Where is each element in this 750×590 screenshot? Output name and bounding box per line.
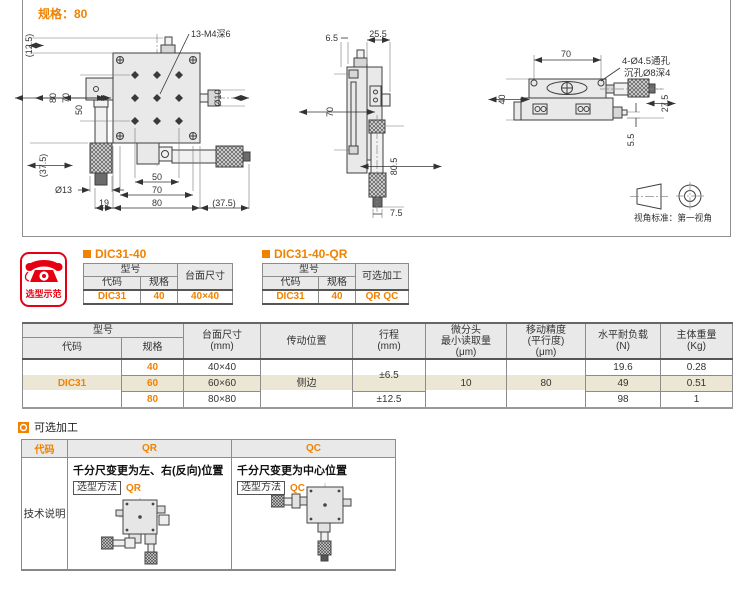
dim-label: Ø13 <box>55 185 72 195</box>
col-header-drive: 传动位置 <box>261 323 353 359</box>
cell-spec: 40 <box>141 290 178 304</box>
example-table-2: 型号 可选加工 代码 规格 DIC31 40 QR QC <box>262 263 409 305</box>
cell-travel: ±12.5 <box>353 392 426 409</box>
dim-label: 19 <box>99 198 109 208</box>
qr-option-cell: 千分尺变更为左、右(反向)位置 选型方法 QR <box>68 458 232 570</box>
table-row: 80 80×80 ±12.5 98 1 <box>23 392 733 409</box>
cell-travel: ±6.5 <box>353 359 426 392</box>
projection-symbol <box>630 182 704 210</box>
col-header-travel: 行程 (mm) <box>353 323 426 359</box>
cell-drive: 侧边 <box>261 359 353 408</box>
cell-weight: 0.28 <box>661 359 733 376</box>
optional-section-title: 可选加工 <box>18 419 78 435</box>
example-title-text: DIC31-40 <box>95 247 146 261</box>
hole-note-line2: 沉孔Ø8深4 <box>624 68 670 79</box>
col-header: 代码 <box>84 277 141 291</box>
col-header-weight: 主体重量 (Kg) <box>661 323 733 359</box>
example-title-2: DIC31-40-QR <box>262 247 347 261</box>
cell-spec: 60 <box>122 376 184 392</box>
table-row: DIC31 40 40×40 侧边 ±6.5 10 80 19.6 0.28 <box>23 359 733 376</box>
col-header-load: 水平耐负载 (N) <box>586 323 661 359</box>
dim-label: 5.5 <box>626 134 636 147</box>
badge-label: 选型示范 <box>22 289 65 299</box>
col-header-spec: 规格 <box>122 337 184 359</box>
cell-load: 19.6 <box>586 359 661 376</box>
section-marker-icon <box>18 422 29 433</box>
dim-label: 13-M4深6 <box>191 29 231 39</box>
dim-label: 80 <box>152 198 162 208</box>
dim-label: 70 <box>325 107 335 117</box>
table-row: 技术说明 千分尺变更为左、右(反向)位置 选型方法 QR <box>22 458 396 570</box>
cell-extra: 40×40 <box>178 290 233 304</box>
example-table-1: 型号 台面尺寸 代码 规格 DIC31 40 40×40 <box>83 263 233 305</box>
col-header-model: 型号 <box>23 323 184 337</box>
dim-label: 7.5 <box>390 208 403 218</box>
dim-label: 50 <box>152 172 162 182</box>
dim-label: 80.5 <box>389 158 399 176</box>
dim-label: 70 <box>152 185 162 195</box>
col-header: 规格 <box>319 277 356 291</box>
cell-surface: 60×60 <box>184 376 261 392</box>
projection-note: 视角标准：第一视角 <box>634 212 712 223</box>
square-bullet-icon <box>83 250 91 258</box>
cell-weight: 1 <box>661 392 733 409</box>
cell-code: DIC31 <box>23 359 122 408</box>
cell-load: 98 <box>586 392 661 409</box>
cell-code: DIC31 <box>84 290 141 304</box>
side-view-drawing: 6.5 25.5 70 80.5 7.5 <box>299 29 442 218</box>
cell-surface: 40×40 <box>184 359 261 376</box>
catalog-page: 规格：80 <box>0 0 750 590</box>
dim-label: Ø10 <box>213 89 223 106</box>
hole-note-line1: 4-Ø4.5通孔 <box>622 56 671 67</box>
col-header: 型号 <box>84 264 178 277</box>
spec-table: 型号 台面尺寸 (mm) 传动位置 行程 (mm) 微分头 最小读取量 (μm)… <box>22 322 733 409</box>
dim-label: 27.5 <box>660 95 670 113</box>
col-header-surface: 台面尺寸 (mm) <box>184 323 261 359</box>
telephone-icon <box>24 256 64 284</box>
qr-option-drawing <box>101 498 178 565</box>
end-view-drawing: 70 4-Ø4.5通孔 沉孔Ø8深4 40 27.5 5.5 视角标准：第一视角 <box>489 49 713 223</box>
cell-accuracy: 80 <box>507 359 586 408</box>
col-header-code: 代码 <box>22 440 68 458</box>
qc-description: 千分尺变更为中心位置 <box>232 458 395 478</box>
col-header-accuracy: 移动精度 (平行度) (μm) <box>507 323 586 359</box>
method-code: QR <box>126 483 141 494</box>
example-title-1: DIC31-40 <box>83 247 146 261</box>
dim-label: 70 <box>561 49 571 59</box>
example-title-text: DIC31-40-QR <box>274 247 347 261</box>
qr-description: 千分尺变更为左、右(反向)位置 <box>68 458 231 478</box>
row-label: 技术说明 <box>22 458 68 570</box>
cell-spec: 40 <box>122 359 184 376</box>
dim-label: (37.5) <box>212 198 236 208</box>
dim-label: 50 <box>74 105 84 115</box>
col-header: 代码 <box>263 277 319 291</box>
cell-spec: 80 <box>122 392 184 409</box>
front-view-drawing: 13-M4深6 Ø10 (12.5) 80 <box>15 29 250 209</box>
selection-example-badge: 选型示范 <box>20 252 67 307</box>
optional-table: 代码 QR QC 技术说明 千分尺变更为左、右(反向)位置 选型方法 QR <box>21 439 396 571</box>
col-header: 规格 <box>141 277 178 291</box>
technical-drawing: 13-M4深6 Ø10 (12.5) 80 <box>0 0 750 237</box>
dim-label: (12.5) <box>24 34 34 58</box>
col-header-qc: QC <box>232 440 396 458</box>
cell-extra: QR QC <box>356 290 409 304</box>
cell-load: 49 <box>586 376 661 392</box>
qc-option-cell: 千分尺变更为中心位置 选型方法 QC <box>232 458 396 570</box>
dim-label: (37.5) <box>38 154 48 178</box>
dim-label: 6.5 <box>325 33 338 43</box>
dim-label: 25.5 <box>369 29 387 39</box>
square-bullet-icon <box>262 250 270 258</box>
method-tag: 选型方法 <box>73 481 121 495</box>
section-title-text: 可选加工 <box>34 419 78 435</box>
cell-weight: 0.51 <box>661 376 733 392</box>
dim-label: 40 <box>497 94 507 104</box>
qc-option-drawing <box>271 483 354 565</box>
cell-spec: 40 <box>319 290 356 304</box>
col-header: 台面尺寸 <box>178 264 233 291</box>
col-header-code: 代码 <box>23 337 122 359</box>
col-header-qr: QR <box>68 440 232 458</box>
cell-micrometer: 10 <box>426 359 507 408</box>
col-header: 型号 <box>263 264 356 277</box>
cell-surface: 80×80 <box>184 392 261 409</box>
col-header-micrometer: 微分头 最小读取量 (μm) <box>426 323 507 359</box>
cell-code: DIC31 <box>263 290 319 304</box>
col-header: 可选加工 <box>356 264 409 291</box>
